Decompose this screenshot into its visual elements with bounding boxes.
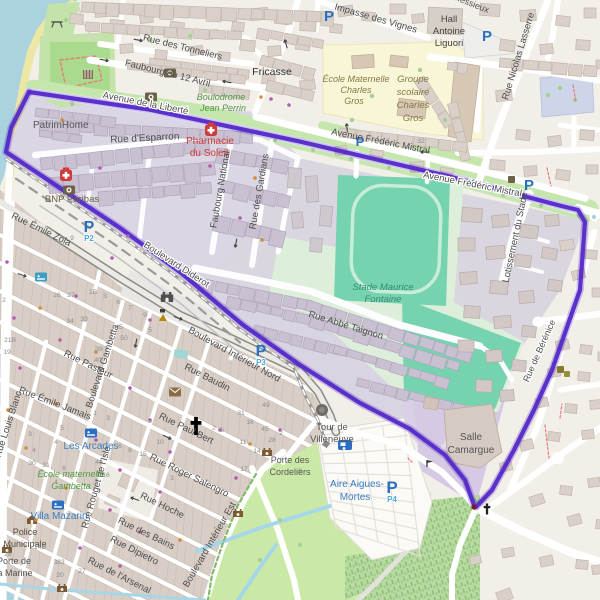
svg-text:BNP Paribas: BNP Paribas xyxy=(45,194,99,205)
svg-text:1B: 1B xyxy=(89,289,98,296)
svg-text:Camargue: Camargue xyxy=(448,445,495,456)
svg-text:16: 16 xyxy=(102,472,110,479)
svg-text:49: 49 xyxy=(262,402,270,409)
svg-text:34: 34 xyxy=(66,318,74,325)
svg-text:28: 28 xyxy=(4,551,12,558)
svg-text:33: 33 xyxy=(80,316,88,323)
svg-text:2: 2 xyxy=(2,297,6,304)
svg-text:École Maternelle: École Maternelle xyxy=(322,74,389,84)
svg-text:6: 6 xyxy=(116,299,120,306)
svg-text:Tour de: Tour de xyxy=(316,422,348,433)
svg-text:P: P xyxy=(524,177,534,194)
svg-text:11: 11 xyxy=(239,439,246,446)
svg-text:5: 5 xyxy=(148,327,152,334)
svg-text:4: 4 xyxy=(32,447,36,454)
svg-text:31: 31 xyxy=(237,410,245,417)
svg-text:8: 8 xyxy=(128,447,132,454)
svg-text:Les Arcades: Les Arcades xyxy=(63,441,118,452)
svg-text:Groupe: Groupe xyxy=(397,74,429,85)
svg-text:3: 3 xyxy=(106,415,110,422)
svg-text:39: 39 xyxy=(95,346,103,353)
svg-text:P2: P2 xyxy=(84,234,94,243)
svg-text:Cordeliers: Cordeliers xyxy=(269,467,311,477)
svg-text:Charles: Charles xyxy=(340,85,372,95)
svg-text:P: P xyxy=(324,8,334,25)
svg-text:17: 17 xyxy=(240,466,248,473)
svg-text:Aire Aigues-: Aire Aigues- xyxy=(330,479,384,490)
svg-text:Gros: Gros xyxy=(403,113,424,124)
svg-text:3: 3 xyxy=(170,475,174,482)
svg-text:6: 6 xyxy=(62,465,66,472)
svg-text:5: 5 xyxy=(220,427,224,434)
svg-text:Villa Mazarin: Villa Mazarin xyxy=(30,511,87,522)
svg-text:Charles: Charles xyxy=(397,100,430,111)
svg-text:14B: 14B xyxy=(34,544,47,551)
svg-text:26: 26 xyxy=(53,292,61,299)
svg-text:4: 4 xyxy=(54,439,58,446)
svg-text:21B: 21B xyxy=(4,337,17,344)
svg-text:50: 50 xyxy=(120,335,128,342)
svg-text:Villeneuve: Villeneuve xyxy=(310,434,354,445)
svg-text:10: 10 xyxy=(156,439,164,446)
svg-text:la Marine: la Marine xyxy=(0,568,33,578)
svg-text:Porte des: Porte des xyxy=(271,455,310,465)
svg-text:20: 20 xyxy=(56,572,64,579)
svg-text:Jean Perrin: Jean Perrin xyxy=(199,103,246,113)
svg-text:École maternelle: École maternelle xyxy=(37,469,104,479)
svg-text:30: 30 xyxy=(28,460,36,467)
svg-text:Mortes: Mortes xyxy=(340,492,371,503)
svg-text:45: 45 xyxy=(261,426,269,433)
svg-text:27: 27 xyxy=(67,292,75,299)
svg-text:2: 2 xyxy=(279,430,283,437)
svg-text:6: 6 xyxy=(118,443,122,450)
svg-text:3: 3 xyxy=(28,431,32,438)
svg-text:27: 27 xyxy=(78,568,86,575)
svg-text:scolaire: scolaire xyxy=(397,87,430,98)
svg-text:PatrimHome: PatrimHome xyxy=(33,120,89,131)
svg-text:Stade Maurice: Stade Maurice xyxy=(352,282,413,293)
svg-text:Gros: Gros xyxy=(344,96,364,106)
svg-text:Antoine: Antoine xyxy=(433,26,465,37)
svg-text:383: 383 xyxy=(53,559,65,566)
svg-text:2: 2 xyxy=(212,425,216,432)
svg-text:Hall: Hall xyxy=(441,14,457,25)
svg-text:P: P xyxy=(482,28,492,45)
svg-text:15: 15 xyxy=(139,451,147,458)
svg-text:1: 1 xyxy=(93,410,97,417)
svg-text:Fontaine: Fontaine xyxy=(365,294,402,305)
svg-text:9: 9 xyxy=(143,312,147,319)
svg-text:28: 28 xyxy=(268,437,276,444)
svg-text:P4: P4 xyxy=(387,495,397,504)
svg-text:41: 41 xyxy=(95,459,103,466)
svg-text:14: 14 xyxy=(253,448,261,455)
svg-text:5: 5 xyxy=(60,425,64,432)
svg-text:32: 32 xyxy=(417,138,425,145)
svg-text:Liguori: Liguori xyxy=(435,38,464,49)
svg-text:18: 18 xyxy=(246,419,254,426)
svg-text:40: 40 xyxy=(94,357,102,364)
svg-text:7: 7 xyxy=(128,305,132,312)
svg-text:Police: Police xyxy=(13,527,38,537)
svg-text:Pharmacie: Pharmacie xyxy=(186,136,234,147)
svg-text:Boulodrome: Boulodrome xyxy=(197,92,246,102)
svg-text:31: 31 xyxy=(42,462,50,469)
svg-text:4: 4 xyxy=(54,479,58,486)
svg-text:9: 9 xyxy=(70,101,74,108)
svg-text:19: 19 xyxy=(3,349,11,356)
svg-text:Salle: Salle xyxy=(460,432,483,443)
svg-text:9: 9 xyxy=(70,235,74,242)
svg-text:45: 45 xyxy=(115,324,123,331)
svg-text:5: 5 xyxy=(148,418,152,425)
svg-text:3: 3 xyxy=(103,293,107,300)
svg-text:Fricasse: Fricasse xyxy=(252,66,292,78)
